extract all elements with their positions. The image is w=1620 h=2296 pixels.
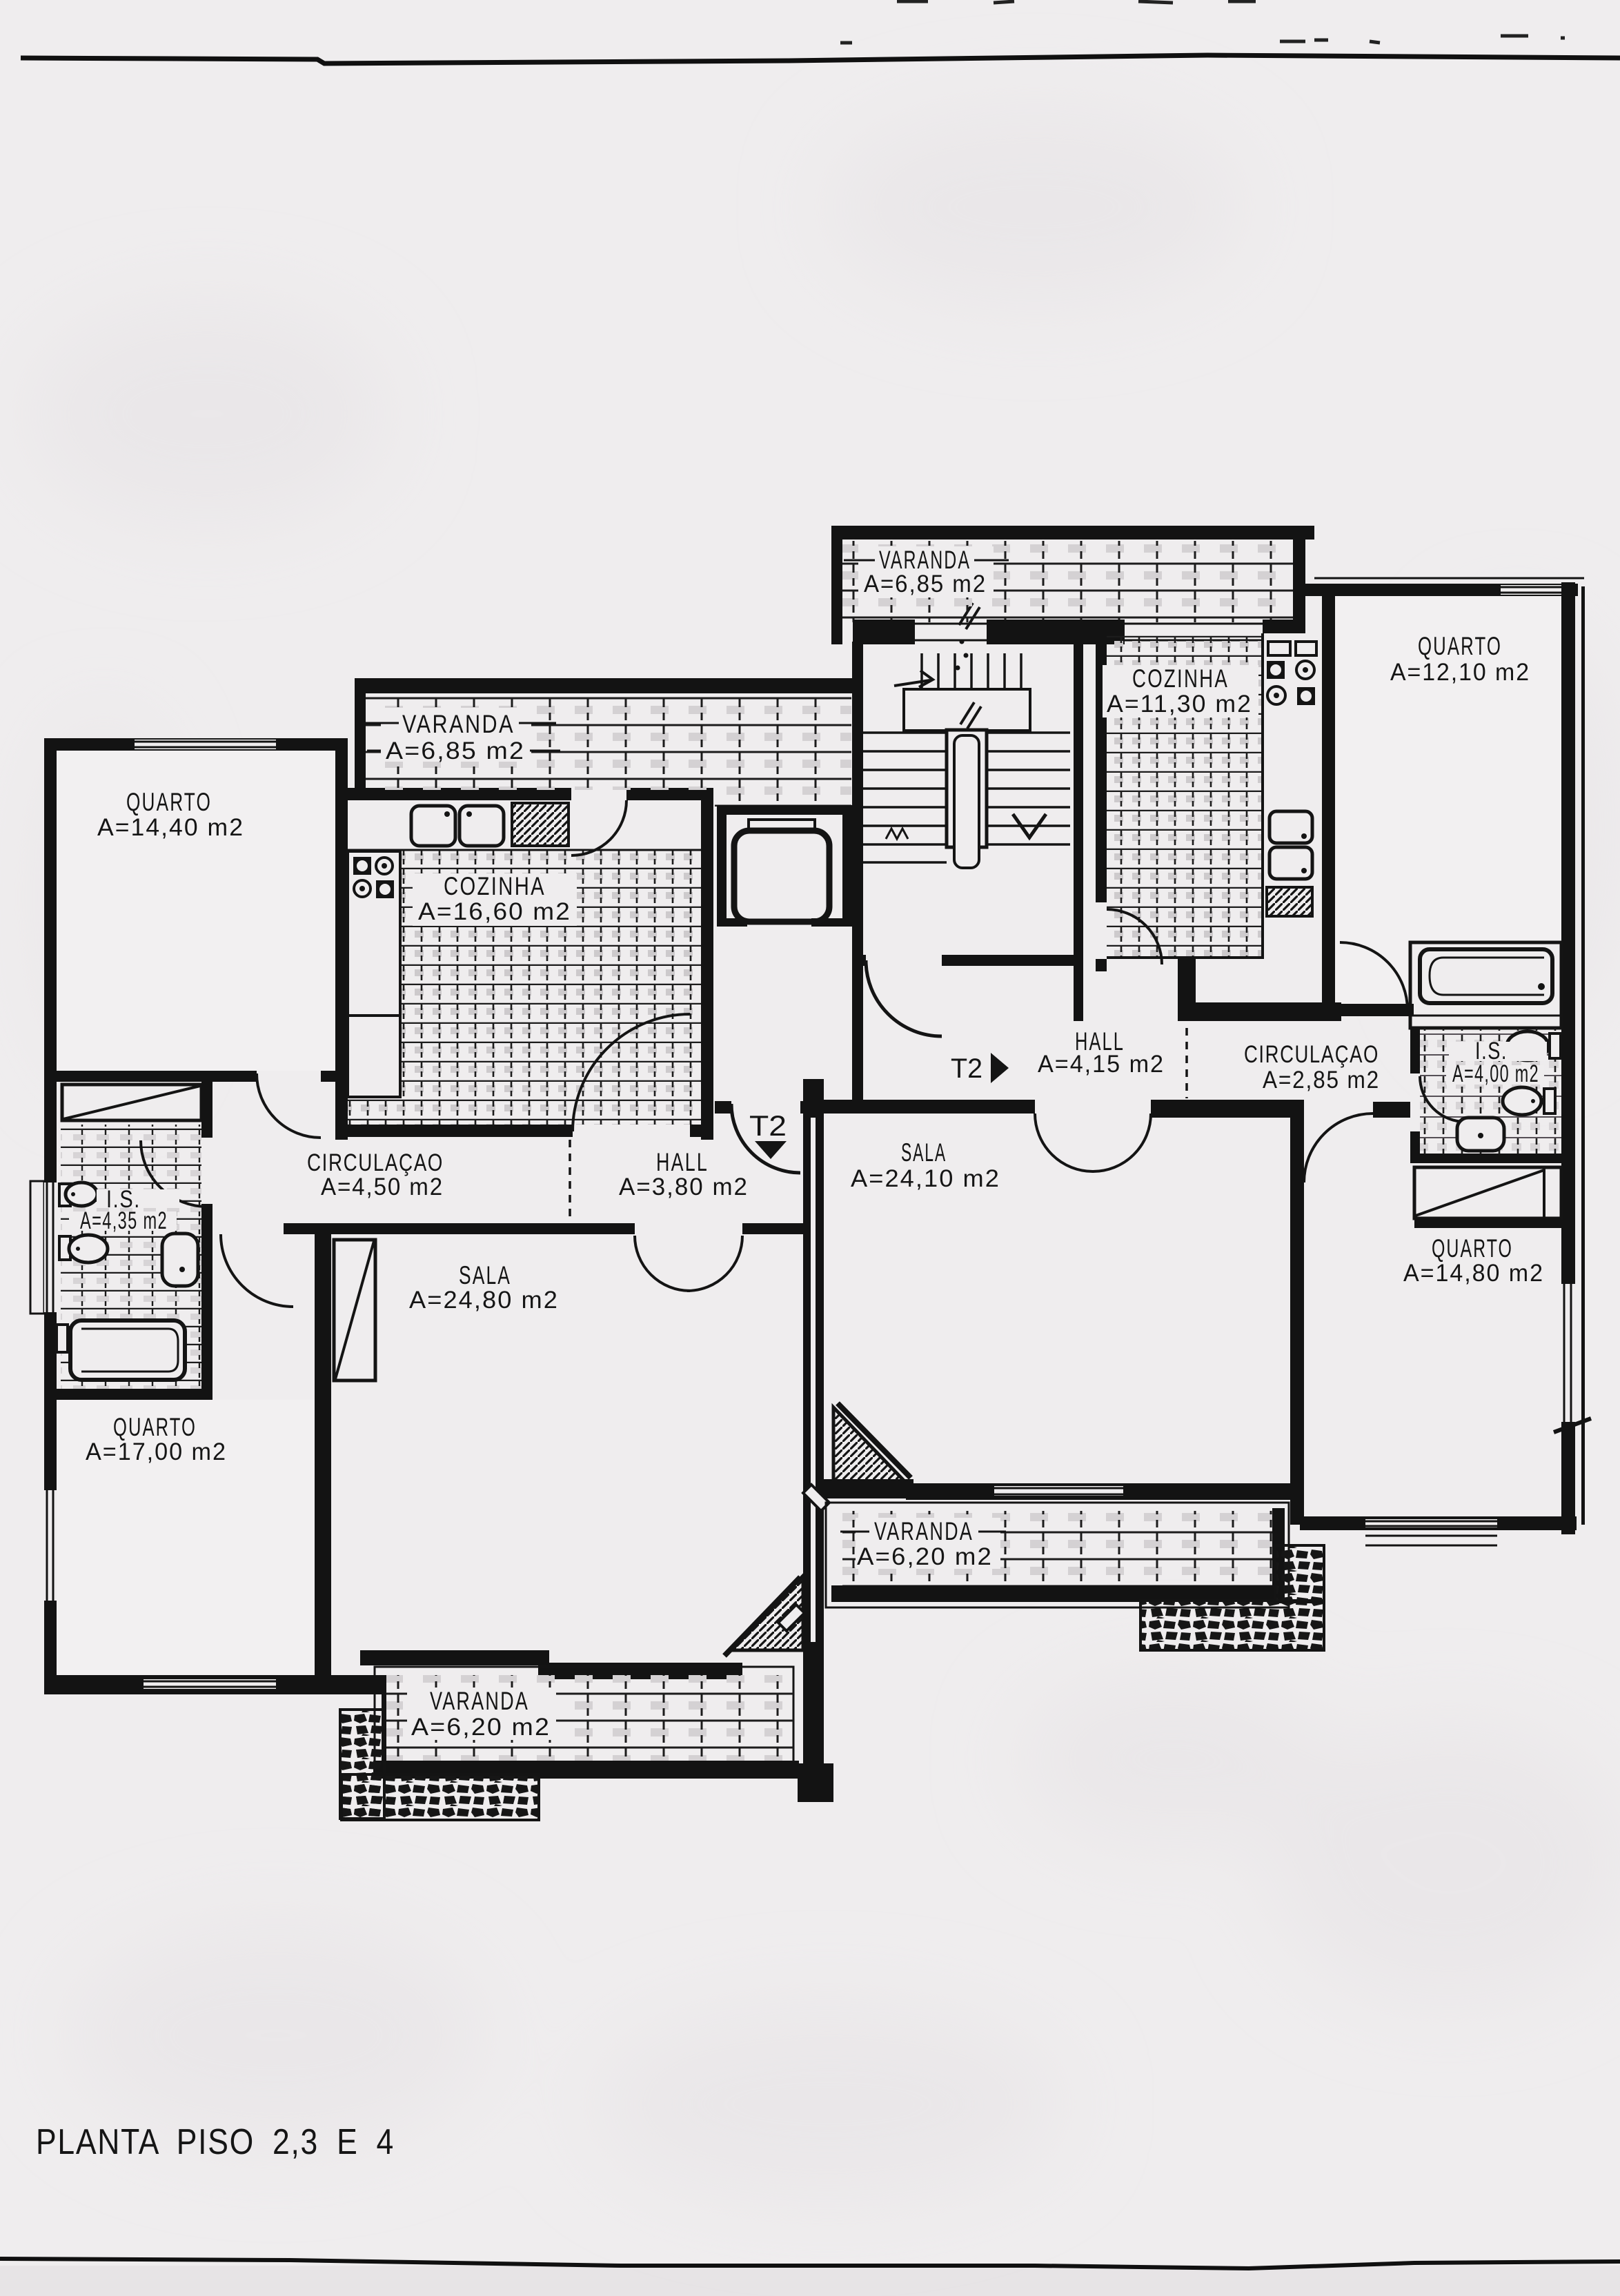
svg-text:QUARTO: QUARTO	[113, 1413, 197, 1441]
svg-text:VARANDA: VARANDA	[874, 1517, 974, 1545]
svg-text:A=12,10 m2: A=12,10 m2	[1390, 659, 1530, 686]
svg-text:A=6,20 m2: A=6,20 m2	[411, 1714, 551, 1741]
svg-text:A=4,00 m2: A=4,00 m2	[1452, 1060, 1539, 1087]
svg-text:PLANTA PISO 2,3 E 4: PLANTA PISO 2,3 E 4	[36, 2122, 395, 2162]
svg-text:A=4,35 m2: A=4,35 m2	[80, 1207, 168, 1234]
svg-text:A=3,80 m2: A=3,80 m2	[619, 1174, 749, 1200]
svg-text:VARANDA: VARANDA	[402, 710, 515, 738]
svg-text:SALA: SALA	[901, 1138, 947, 1167]
svg-text:A=24,10 m2: A=24,10 m2	[851, 1165, 1000, 1192]
svg-text:A=11,30 m2: A=11,30 m2	[1107, 691, 1252, 717]
svg-text:VARANDA: VARANDA	[430, 1687, 529, 1715]
svg-text:A=24,80 m2: A=24,80 m2	[409, 1287, 559, 1314]
svg-text:A=6,85 m2: A=6,85 m2	[864, 571, 987, 597]
svg-text:COZINHA: COZINHA	[444, 872, 546, 900]
svg-text:A=14,40 m2: A=14,40 m2	[97, 814, 244, 841]
svg-text:SALA: SALA	[459, 1261, 511, 1289]
svg-text:A=6,20 m2: A=6,20 m2	[857, 1543, 993, 1570]
svg-text:A=2,85 m2: A=2,85 m2	[1263, 1067, 1380, 1093]
svg-text:COZINHA: COZINHA	[1132, 664, 1229, 693]
svg-text:QUARTO: QUARTO	[126, 788, 212, 816]
svg-text:VARANDA: VARANDA	[879, 546, 971, 574]
svg-text:CIRCULAÇAO: CIRCULAÇAO	[1244, 1041, 1379, 1068]
svg-text:A=17,00 m2: A=17,00 m2	[86, 1438, 227, 1465]
svg-text:A=4,50 m2: A=4,50 m2	[321, 1174, 444, 1200]
svg-text:A=14,80 m2: A=14,80 m2	[1403, 1260, 1544, 1287]
svg-text:T2: T2	[951, 1053, 982, 1084]
svg-text:A=16,60 m2: A=16,60 m2	[418, 898, 571, 925]
svg-text:T2: T2	[749, 1109, 787, 1142]
svg-text:A=6,85 m2: A=6,85 m2	[386, 738, 525, 764]
svg-text:QUARTO: QUARTO	[1418, 632, 1502, 660]
svg-text:CIRCULAÇAO: CIRCULAÇAO	[307, 1149, 444, 1176]
svg-text:A=4,15 m2: A=4,15 m2	[1038, 1051, 1165, 1078]
svg-text:QUARTO: QUARTO	[1432, 1234, 1513, 1263]
svg-text:HALL: HALL	[656, 1148, 709, 1176]
